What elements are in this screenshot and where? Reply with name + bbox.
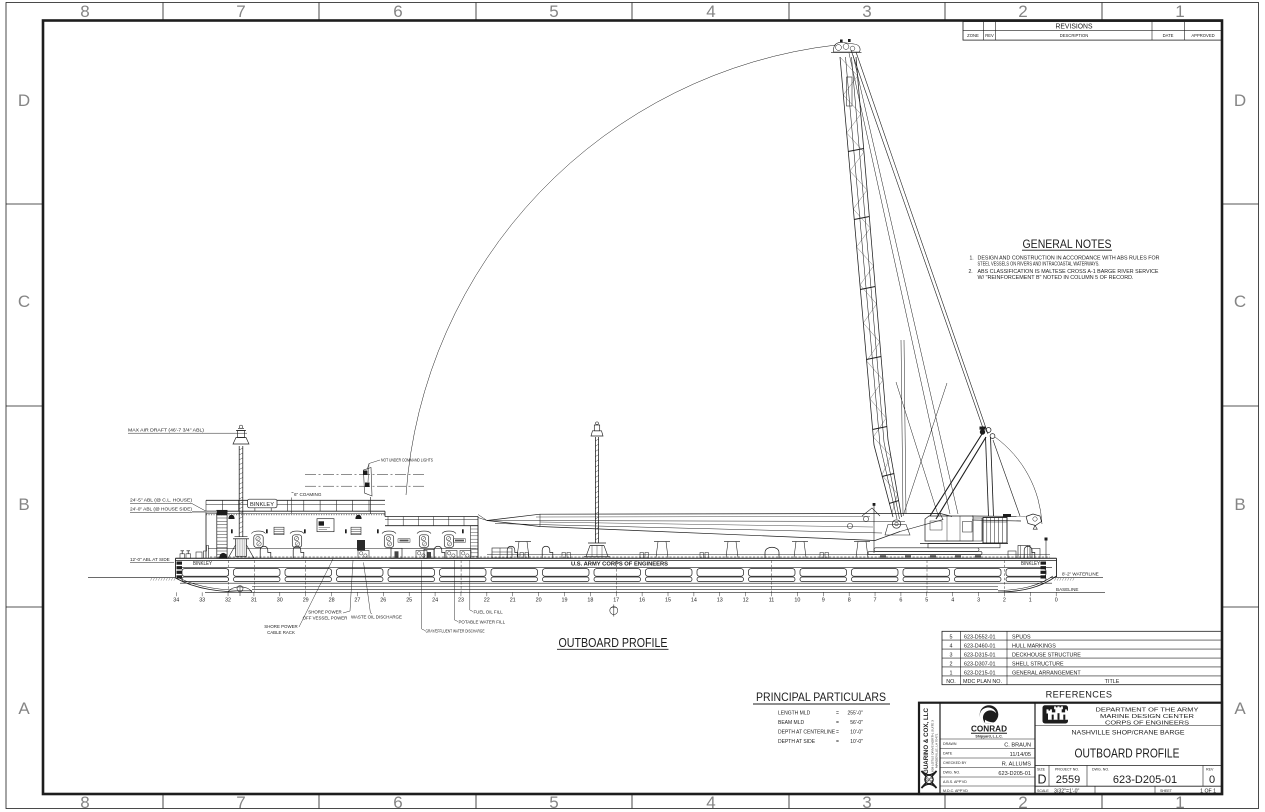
svg-text:3: 3	[977, 598, 980, 604]
svg-text:623-D552-01: 623-D552-01	[964, 634, 995, 640]
svg-text:WASTE OIL DISCHARGE: WASTE OIL DISCHARGE	[351, 615, 402, 620]
svg-text:18: 18	[587, 598, 593, 604]
svg-text:7: 7	[874, 598, 877, 604]
svg-text:34: 34	[173, 598, 179, 604]
svg-text:13: 13	[717, 598, 723, 604]
svg-text:4: 4	[951, 598, 954, 604]
svg-text:3: 3	[862, 2, 871, 21]
svg-text:OFF VESSEL POWER: OFF VESSEL POWER	[303, 615, 348, 620]
svg-text:BINKLEY: BINKLEY	[193, 561, 212, 567]
svg-text:A: A	[18, 699, 30, 718]
svg-text:D: D	[1234, 91, 1246, 110]
svg-text:C. BRAUN: C. BRAUN	[1004, 743, 1031, 749]
svg-text:SHEET: SHEET	[1160, 789, 1173, 793]
svg-text:BINKLEY: BINKLEY	[250, 502, 274, 508]
svg-text:11: 11	[769, 598, 775, 604]
svg-text:ZONE: ZONE	[967, 33, 979, 38]
svg-text:CHECKED BY: CHECKED BY	[943, 761, 967, 765]
svg-text:31: 31	[251, 598, 257, 604]
svg-text:7: 7	[236, 2, 245, 21]
svg-text:DWG. NO.: DWG. NO.	[1092, 767, 1109, 771]
svg-text:9: 9	[822, 598, 825, 604]
svg-text:BEAM MLD: BEAM MLD	[778, 720, 805, 726]
svg-text:W/ "REINFORCEMENT B" NOTED IN: W/ "REINFORCEMENT B" NOTED IN COLUMN 5 O…	[978, 275, 1134, 281]
svg-text:11/14/05: 11/14/05	[1010, 752, 1031, 758]
svg-text:2: 2	[950, 661, 953, 667]
svg-text:12: 12	[743, 598, 749, 604]
svg-text:TITLE: TITLE	[1105, 679, 1120, 685]
svg-text:POTABLE WATER FILL: POTABLE WATER FILL	[459, 619, 506, 624]
svg-text:NOT UNDER COMMAND LIGHTS: NOT UNDER COMMAND LIGHTS	[381, 457, 433, 462]
svg-text:3: 3	[862, 793, 871, 812]
svg-text:GRAY/EFFLUENT WATER DISCHARGE: GRAY/EFFLUENT WATER DISCHARGE	[426, 628, 485, 633]
svg-text:23: 23	[458, 598, 464, 604]
svg-text:GENERAL ARRANGEMENT: GENERAL ARRANGEMENT	[1012, 670, 1081, 676]
svg-text:10'-0": 10'-0"	[850, 739, 863, 745]
svg-text:5: 5	[549, 2, 558, 21]
svg-text:SIZE: SIZE	[1037, 767, 1046, 771]
svg-text:LENGTH MLD: LENGTH MLD	[778, 711, 811, 717]
svg-text:REVISIONS: REVISIONS	[1056, 23, 1093, 30]
svg-text:CABLE RACK: CABLE RACK	[267, 630, 295, 635]
svg-text:A.B.S. APP'VD: A.B.S. APP'VD	[943, 780, 967, 784]
svg-text:GC: GC	[925, 778, 933, 784]
svg-text:Shipyard, L.L.C.: Shipyard, L.L.C.	[975, 735, 1002, 739]
svg-text:MARINE DESIGN CENTER: MARINE DESIGN CENTER	[1100, 714, 1194, 720]
svg-text:0: 0	[1209, 774, 1215, 786]
svg-text:14: 14	[691, 598, 697, 604]
svg-text:DEPARTMENT OF THE ARMY: DEPARTMENT OF THE ARMY	[1096, 708, 1199, 714]
svg-text:255'-0": 255'-0"	[847, 711, 863, 717]
svg-text:U.S. ARMY CORPS OF ENGINEERS: U.S. ARMY CORPS OF ENGINEERS	[571, 562, 669, 568]
svg-text:30: 30	[277, 598, 283, 604]
svg-text:0: 0	[1055, 598, 1058, 604]
svg-text:56'-0": 56'-0"	[850, 720, 863, 726]
svg-text:6" COAMING: 6" COAMING	[294, 492, 322, 497]
svg-text:10: 10	[794, 598, 800, 604]
svg-text:22: 22	[484, 598, 490, 604]
svg-text:6: 6	[393, 793, 402, 812]
svg-text:REV: REV	[1206, 767, 1214, 771]
svg-text:1 OF 1: 1 OF 1	[1200, 788, 1216, 794]
svg-text:MANDEVILLE, LA 70471: MANDEVILLE, LA 70471	[935, 733, 939, 768]
svg-text:PRINCIPAL PARTICULARS: PRINCIPAL PARTICULARS	[756, 690, 886, 704]
svg-text:STEEL VESSELS ON RIVERS AND IN: STEEL VESSELS ON RIVERS AND INTRACOASTAL…	[978, 261, 1100, 267]
svg-text:R. ALLUMS: R. ALLUMS	[1002, 762, 1031, 768]
svg-text:BINKLEY: BINKLEY	[1021, 561, 1040, 567]
svg-text:APPROVED: APPROVED	[1191, 33, 1214, 38]
svg-text:HULL MARKINGS: HULL MARKINGS	[1012, 643, 1056, 649]
svg-text:D: D	[1037, 773, 1046, 787]
svg-text:2.: 2.	[969, 269, 973, 275]
svg-text:21: 21	[510, 598, 516, 604]
svg-text:D: D	[18, 91, 30, 110]
svg-text:REFERENCES: REFERENCES	[1046, 690, 1113, 700]
svg-text:DECKHOUSE STRUCTURE: DECKHOUSE STRUCTURE	[1012, 652, 1081, 658]
svg-text:19: 19	[562, 598, 568, 604]
svg-text:=: =	[836, 720, 839, 726]
svg-text:DATE: DATE	[1163, 33, 1174, 38]
svg-text:B: B	[1234, 495, 1245, 514]
svg-text:1: 1	[950, 670, 953, 676]
svg-text:MAX AIR DRAFT (46'-7 3/4" ABL): MAX AIR DRAFT (46'-7 3/4" ABL)	[128, 427, 205, 432]
svg-text:SHORE POWER: SHORE POWER	[264, 624, 297, 629]
svg-text:BASELINE: BASELINE	[1056, 587, 1078, 592]
svg-text:1.: 1.	[970, 255, 974, 261]
svg-text:17: 17	[613, 598, 619, 604]
svg-text:623-D215-01: 623-D215-01	[964, 670, 995, 676]
svg-text:CONRAD: CONRAD	[971, 725, 1007, 734]
svg-text:DWG. NO.: DWG. NO.	[943, 771, 960, 775]
svg-text:24'-0" ABL (@ HOUSE SIDE): 24'-0" ABL (@ HOUSE SIDE)	[130, 507, 192, 512]
svg-text:623-D307-01: 623-D307-01	[964, 661, 995, 667]
svg-text:NASHVILLE SHOP/CRANE BARGE: NASHVILLE SHOP/CRANE BARGE	[1072, 730, 1185, 737]
svg-text:15: 15	[665, 598, 671, 604]
svg-text:5: 5	[925, 598, 928, 604]
svg-text:28: 28	[329, 598, 335, 604]
svg-text:4: 4	[706, 793, 715, 812]
svg-text:GUARINO & COX, LLC: GUARINO & COX, LLC	[923, 707, 930, 774]
svg-text:OUTBOARD PROFILE: OUTBOARD PROFILE	[559, 635, 668, 650]
svg-text:16: 16	[639, 598, 645, 604]
svg-text:3/32"=1'-0": 3/32"=1'-0"	[1054, 788, 1079, 794]
svg-text:SPUDS: SPUDS	[1012, 634, 1031, 640]
svg-text:SHORE POWER: SHORE POWER	[308, 609, 341, 614]
svg-text:8: 8	[848, 598, 851, 604]
svg-text:5: 5	[950, 634, 953, 640]
svg-text:27: 27	[354, 598, 360, 604]
svg-text:33: 33	[199, 598, 205, 604]
svg-text:NO.: NO.	[946, 679, 956, 685]
svg-text:6: 6	[393, 2, 402, 21]
svg-text:=: =	[836, 739, 839, 745]
svg-text:C: C	[1234, 292, 1246, 311]
svg-text:M.D.C. APP'VD: M.D.C. APP'VD	[943, 789, 968, 793]
svg-text:26: 26	[380, 598, 386, 604]
svg-text:623-D315-01: 623-D315-01	[964, 652, 995, 658]
svg-text:1: 1	[1175, 2, 1184, 21]
svg-text:623-D205-01: 623-D205-01	[998, 771, 1031, 777]
svg-text:PROJECT NO.: PROJECT NO.	[1055, 767, 1079, 771]
svg-text:REV: REV	[985, 33, 994, 38]
svg-text:4: 4	[950, 643, 953, 649]
svg-text:SCALE: SCALE	[1037, 789, 1049, 793]
svg-text:20: 20	[536, 598, 542, 604]
svg-text:24: 24	[432, 598, 438, 604]
svg-text:DEPTH AT SIDE: DEPTH AT SIDE	[778, 739, 816, 745]
svg-text:32: 32	[225, 598, 231, 604]
svg-text:2: 2	[1018, 793, 1027, 812]
svg-text:1: 1	[1029, 598, 1032, 604]
svg-text:B: B	[18, 495, 29, 514]
svg-text:10'-0": 10'-0"	[850, 730, 863, 736]
svg-text:1: 1	[1175, 793, 1184, 812]
svg-text:29: 29	[303, 598, 309, 604]
svg-text:FUEL OIL FILL: FUEL OIL FILL	[474, 609, 504, 614]
svg-text:8: 8	[80, 793, 89, 812]
svg-text:5: 5	[549, 793, 558, 812]
svg-text:=: =	[836, 711, 839, 717]
svg-text:3: 3	[950, 652, 953, 658]
svg-text:4: 4	[706, 2, 715, 21]
svg-text:DEPTH AT CENTERLINE: DEPTH AT CENTERLINE	[778, 730, 836, 736]
svg-text:=: =	[836, 730, 839, 736]
svg-text:25: 25	[406, 598, 412, 604]
svg-text:2: 2	[1018, 2, 1027, 21]
svg-text:6: 6	[899, 598, 902, 604]
svg-text:2: 2	[1003, 598, 1006, 604]
svg-text:OUTBOARD PROFILE: OUTBOARD PROFILE	[1075, 746, 1180, 761]
svg-text:24'-5" ABL (@ C.L. HOUSE): 24'-5" ABL (@ C.L. HOUSE)	[130, 498, 192, 503]
svg-text:DATE: DATE	[943, 752, 953, 756]
svg-text:8: 8	[80, 2, 89, 21]
svg-text:2559: 2559	[1056, 774, 1080, 786]
svg-text:SHELL STRUCTURE: SHELL STRUCTURE	[1012, 661, 1064, 667]
svg-text:A: A	[1234, 699, 1246, 718]
svg-text:12'-0" ABL AT SIDE: 12'-0" ABL AT SIDE	[130, 557, 170, 562]
svg-text:DESCRIPTION: DESCRIPTION	[1060, 33, 1089, 38]
svg-text:623-D460-01: 623-D460-01	[964, 643, 995, 649]
svg-text:623-D205-01: 623-D205-01	[1113, 774, 1177, 786]
svg-text:MDC PLAN NO.: MDC PLAN NO.	[963, 679, 1002, 685]
svg-text:CORPS OF ENGINEERS: CORPS OF ENGINEERS	[1105, 720, 1189, 726]
svg-text:C: C	[18, 292, 30, 311]
svg-text:GENERAL NOTES: GENERAL NOTES	[1023, 238, 1112, 251]
svg-text:DRAWN: DRAWN	[943, 742, 957, 746]
svg-text:7: 7	[236, 793, 245, 812]
svg-text:8'-2" WATERLINE: 8'-2" WATERLINE	[1062, 571, 1099, 576]
